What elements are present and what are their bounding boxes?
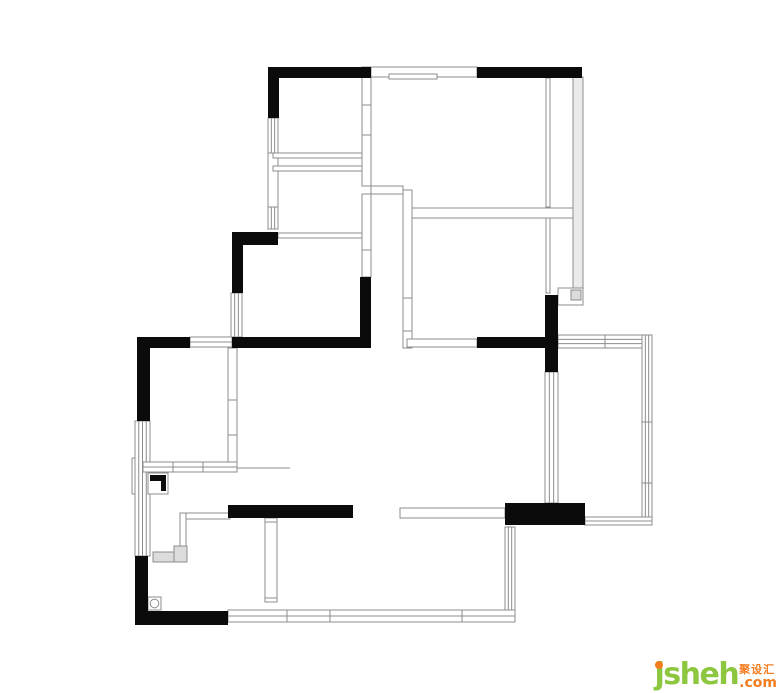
detail-lines-layer <box>228 105 412 598</box>
logo-chinese-label: 聚设汇 <box>739 664 777 675</box>
logo-brand-wrap: jsheh <box>654 661 738 688</box>
site-logo: jsheh 聚设汇 .com <box>654 661 777 690</box>
logo-domain-suffix: .com <box>739 676 777 690</box>
floor-plan-canvas <box>0 0 780 693</box>
floor-plan-page: jsheh 聚设汇 .com <box>0 0 780 693</box>
logo-side-block: 聚设汇 .com <box>739 661 777 690</box>
logo-brand-text: jsheh <box>654 657 738 692</box>
